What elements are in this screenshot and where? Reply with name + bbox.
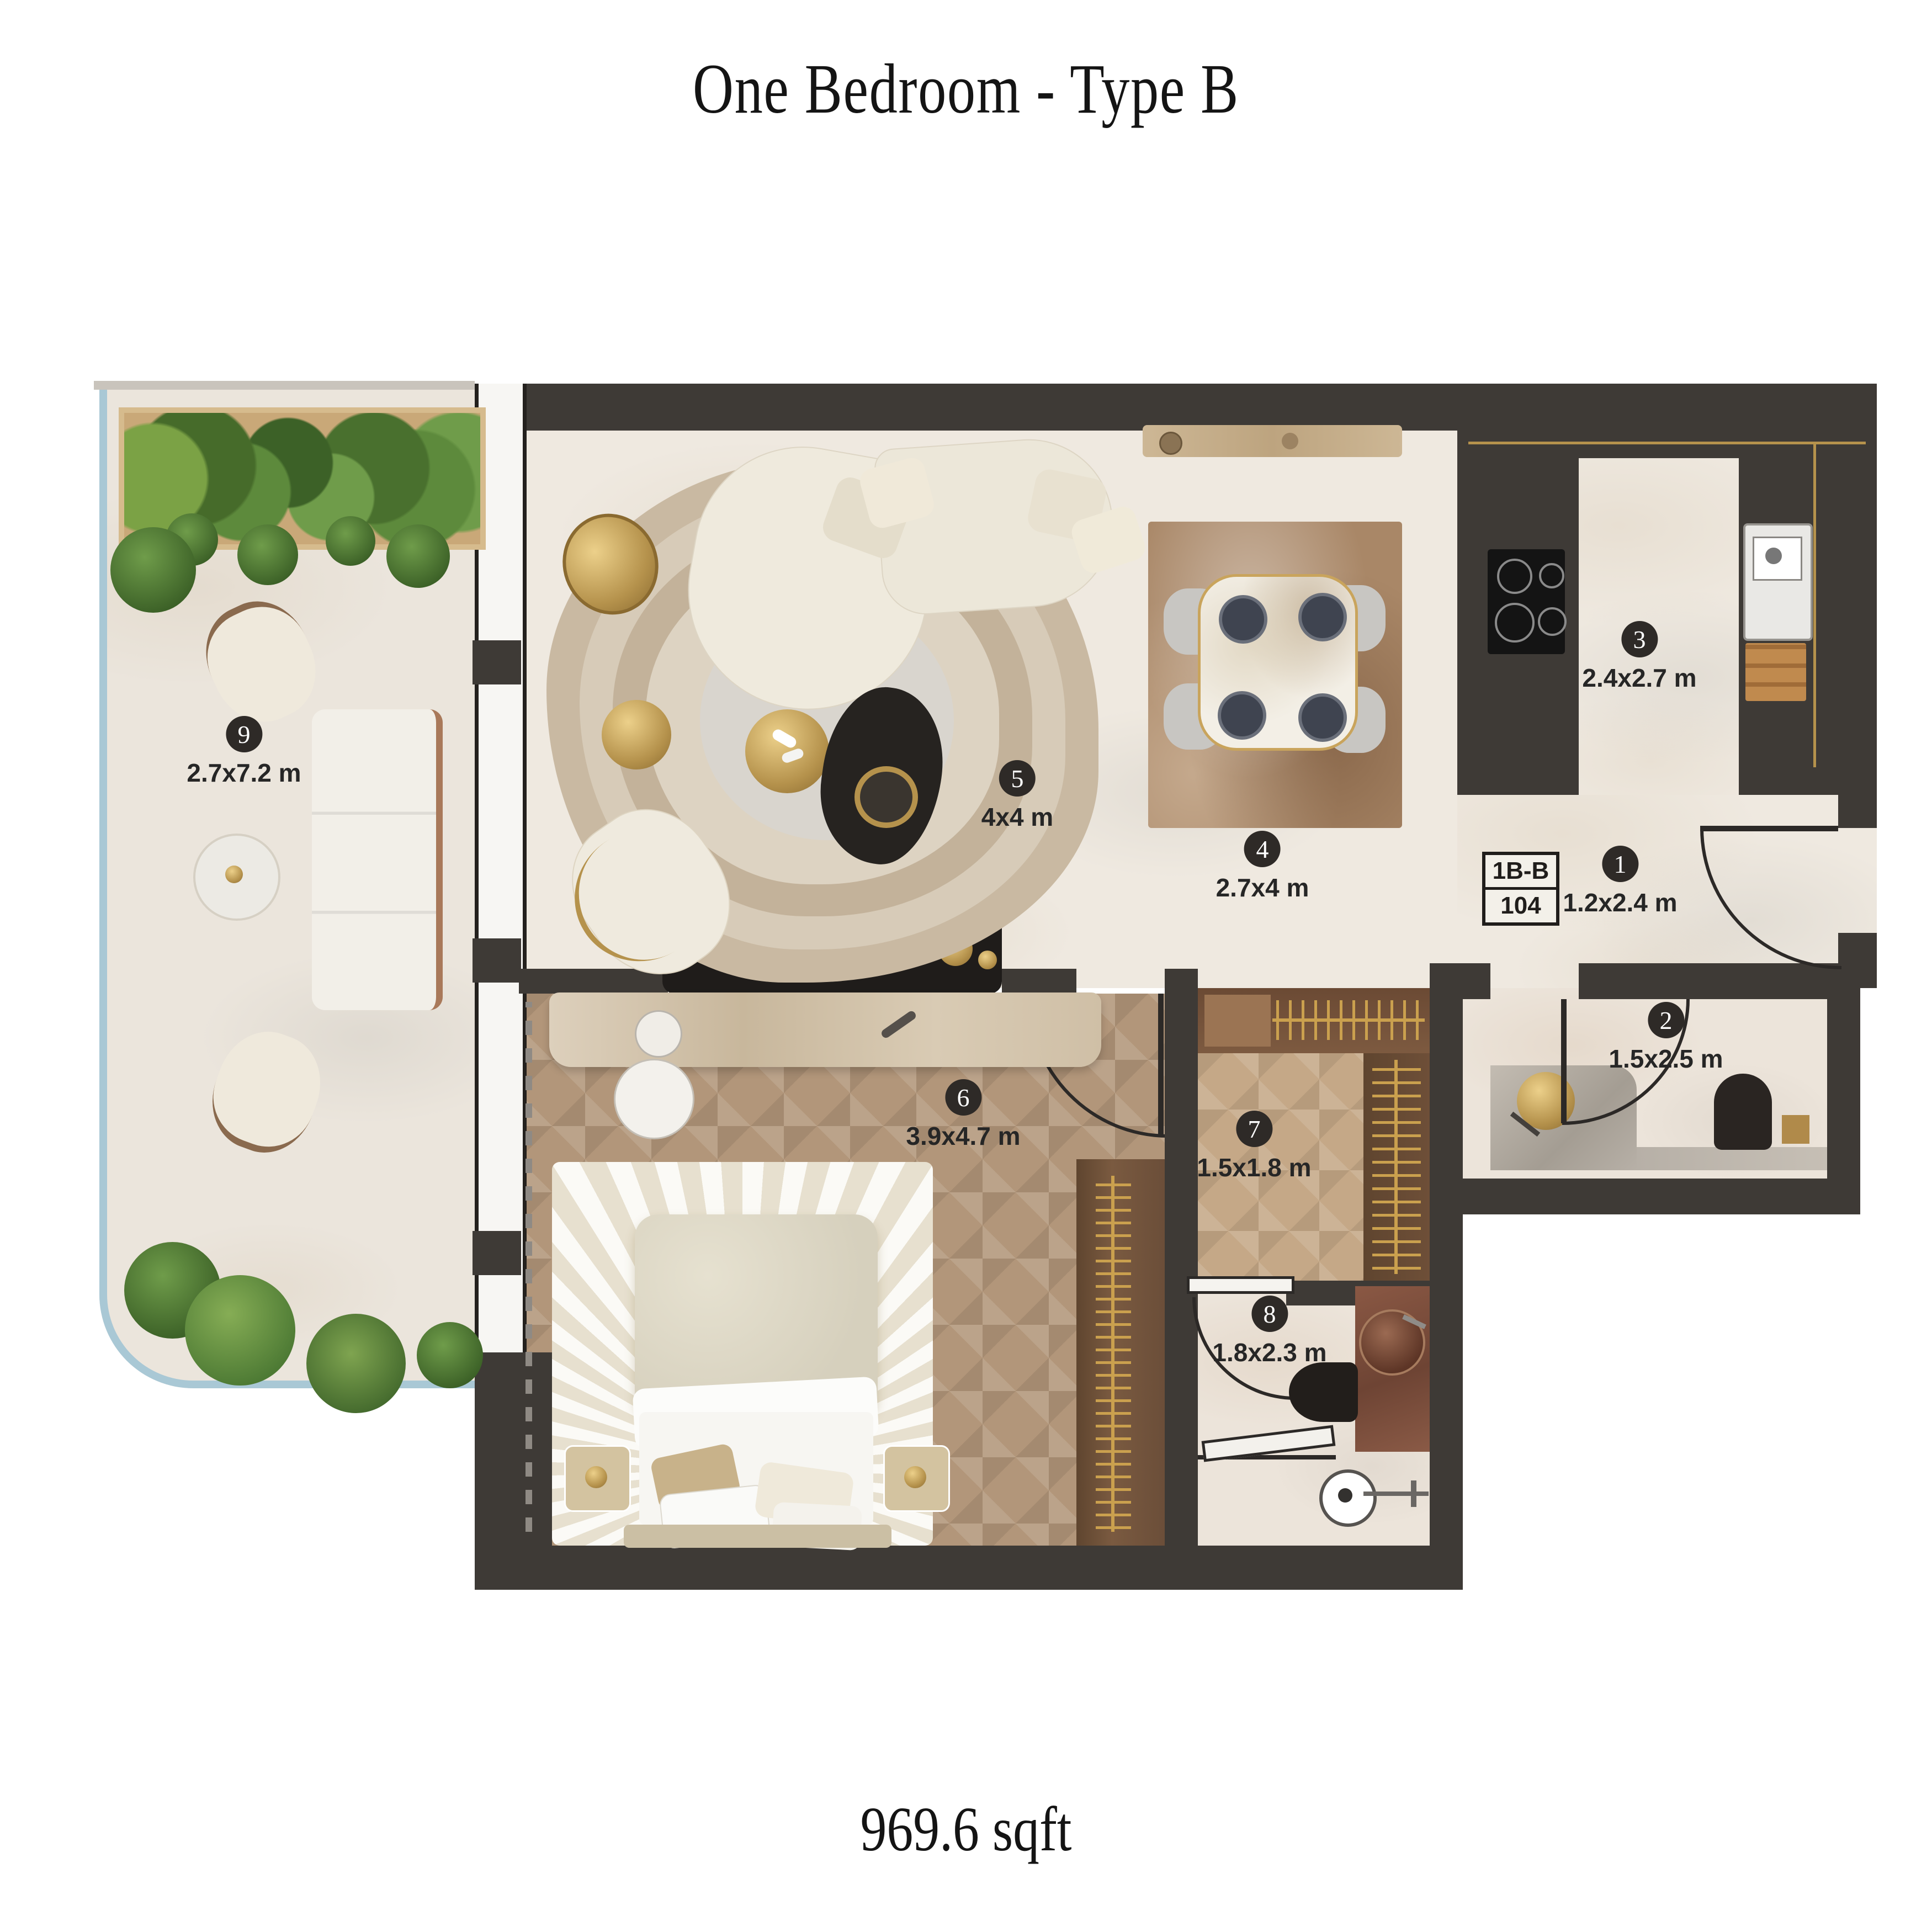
room-3-badge-icon: 3	[1621, 621, 1658, 657]
bedroom-door-leaf	[1158, 994, 1164, 1137]
bedroom-dresser	[549, 992, 1101, 1067]
area-label: 969.6 sqft	[155, 1793, 1777, 1866]
bath2-gold-bin	[1782, 1115, 1809, 1144]
room-2-dims: 1.5x2.5 m	[1609, 1044, 1723, 1074]
pendant-small	[635, 1010, 682, 1058]
gold-side-table-1	[602, 700, 671, 769]
room-5-badge-icon: 5	[999, 760, 1036, 797]
entry-door-leaf	[1700, 826, 1838, 831]
potted-plant	[110, 527, 196, 613]
shower-arm	[1363, 1492, 1429, 1496]
nightstand-right-knob	[904, 1466, 926, 1488]
kitchen-faucet	[1765, 548, 1782, 564]
balcony-top-wall	[94, 381, 475, 390]
room-5-dims: 4x4 m	[981, 802, 1053, 832]
bath8-door-leaf	[1187, 1276, 1294, 1294]
cooktop-burner-3	[1539, 563, 1564, 588]
room-4-dims: 2.7x4 m	[1216, 873, 1309, 903]
room-8-dims: 1.8x2.3 m	[1212, 1337, 1326, 1367]
shower-valve	[1411, 1480, 1416, 1507]
entry-wall-right-top	[1838, 795, 1877, 828]
table-setting-4	[1298, 693, 1347, 742]
gold-side-table-2	[745, 709, 829, 793]
planter-fringe-2	[237, 524, 298, 585]
bedroom-wardrobe-rail	[1111, 1176, 1114, 1532]
table-setting-1	[1219, 595, 1267, 644]
shower-head-center	[1338, 1488, 1352, 1503]
balcony-plant-grass	[306, 1314, 406, 1413]
kitchen-gold-trim-right	[1813, 442, 1816, 767]
room-label-closet: 7 1.5x1.8 m	[1197, 1111, 1311, 1182]
closet-rail-right	[1394, 1060, 1398, 1274]
bath2-wall-top	[1579, 963, 1827, 999]
cooktop-burner-4	[1538, 607, 1567, 636]
room-3-dims: 2.4x2.7 m	[1582, 663, 1696, 693]
wall-bottom	[475, 1546, 1463, 1590]
room-label-ensuite: 8 1.8x2.3 m	[1212, 1296, 1326, 1367]
cooktop-burner-1	[1497, 559, 1532, 594]
bath2-wall-bottom	[1463, 1179, 1860, 1214]
kitchen-gold-trim-top	[1468, 442, 1866, 444]
bath2-door-leaf	[1561, 999, 1567, 1123]
room-1-dims: 1.2x2.4 m	[1563, 888, 1677, 917]
room-9-badge-icon: 9	[226, 716, 262, 752]
wall-spine-right	[1430, 963, 1463, 1590]
wall-bedroom-top-right	[1002, 969, 1076, 994]
bath2-toilet	[1714, 1074, 1772, 1150]
bed-headboard	[624, 1525, 891, 1548]
room-9-dims: 2.7x7.2 m	[187, 758, 301, 788]
window-mullion-2	[473, 938, 521, 983]
table-setting-3	[1218, 691, 1266, 740]
room-label-living: 5 4x4 m	[981, 760, 1053, 832]
balcony-table-decor	[225, 866, 243, 883]
room-label-entrance: 1 1.2x2.4 m	[1563, 846, 1677, 917]
window-mullion-3	[473, 1231, 521, 1275]
entry-wall-right-bottom	[1838, 933, 1877, 988]
room-6-badge-icon: 6	[945, 1079, 981, 1116]
curtain	[526, 1002, 532, 1532]
bath2-wall-stub	[1463, 963, 1490, 999]
console-decor-2	[1282, 433, 1298, 449]
closet-shelf	[1204, 995, 1271, 1047]
room-1-badge-icon: 1	[1602, 846, 1638, 882]
bath2-wall-right	[1827, 963, 1860, 1203]
room-label-bathroom: 2 1.5x2.5 m	[1609, 1002, 1723, 1074]
window-mullion-1	[473, 640, 521, 684]
closet-rail-top	[1272, 1018, 1425, 1022]
stone-table-gold-bowl	[854, 766, 918, 828]
room-2-badge-icon: 2	[1648, 1002, 1684, 1038]
unit-number: 104	[1485, 887, 1556, 922]
page-title: One Bedroom - Type B	[193, 49, 1739, 130]
room-label-kitchen: 3 2.4x2.7 m	[1582, 621, 1696, 693]
cutting-board	[1745, 643, 1806, 701]
balcony-sofa	[312, 709, 443, 1010]
planter-fringe-4	[386, 524, 450, 588]
console-decor-1	[1159, 432, 1182, 455]
pendant-large	[614, 1059, 694, 1139]
wall-top	[475, 384, 1877, 431]
table-setting-2	[1298, 593, 1347, 641]
room-7-dims: 1.5x1.8 m	[1197, 1153, 1311, 1182]
unit-tag: 1B-B 104	[1482, 852, 1559, 926]
room-label-dining: 4 2.7x4 m	[1216, 831, 1309, 903]
room-8-badge-icon: 8	[1251, 1296, 1288, 1332]
bath2-counter	[1637, 1147, 1827, 1170]
balcony-plant-small	[417, 1322, 483, 1388]
room-label-bedroom: 6 3.9x4.7 m	[906, 1079, 1020, 1151]
room-4-badge-icon: 4	[1244, 831, 1281, 867]
planter-fringe-3	[326, 516, 375, 566]
room-6-dims: 3.9x4.7 m	[906, 1121, 1020, 1151]
bath8-toilet	[1289, 1362, 1358, 1422]
room-7-badge-icon: 7	[1236, 1111, 1272, 1147]
cooktop-burner-2	[1495, 603, 1535, 643]
tv-console-gold-dot	[978, 951, 997, 969]
unit-type: 1B-B	[1485, 855, 1556, 887]
nightstand-left-knob	[585, 1466, 607, 1488]
balcony-plant-bush	[185, 1275, 295, 1386]
room-label-balcony: 9 2.7x7.2 m	[187, 716, 301, 788]
floorplan-page: One Bedroom - Type B	[0, 0, 1932, 1932]
